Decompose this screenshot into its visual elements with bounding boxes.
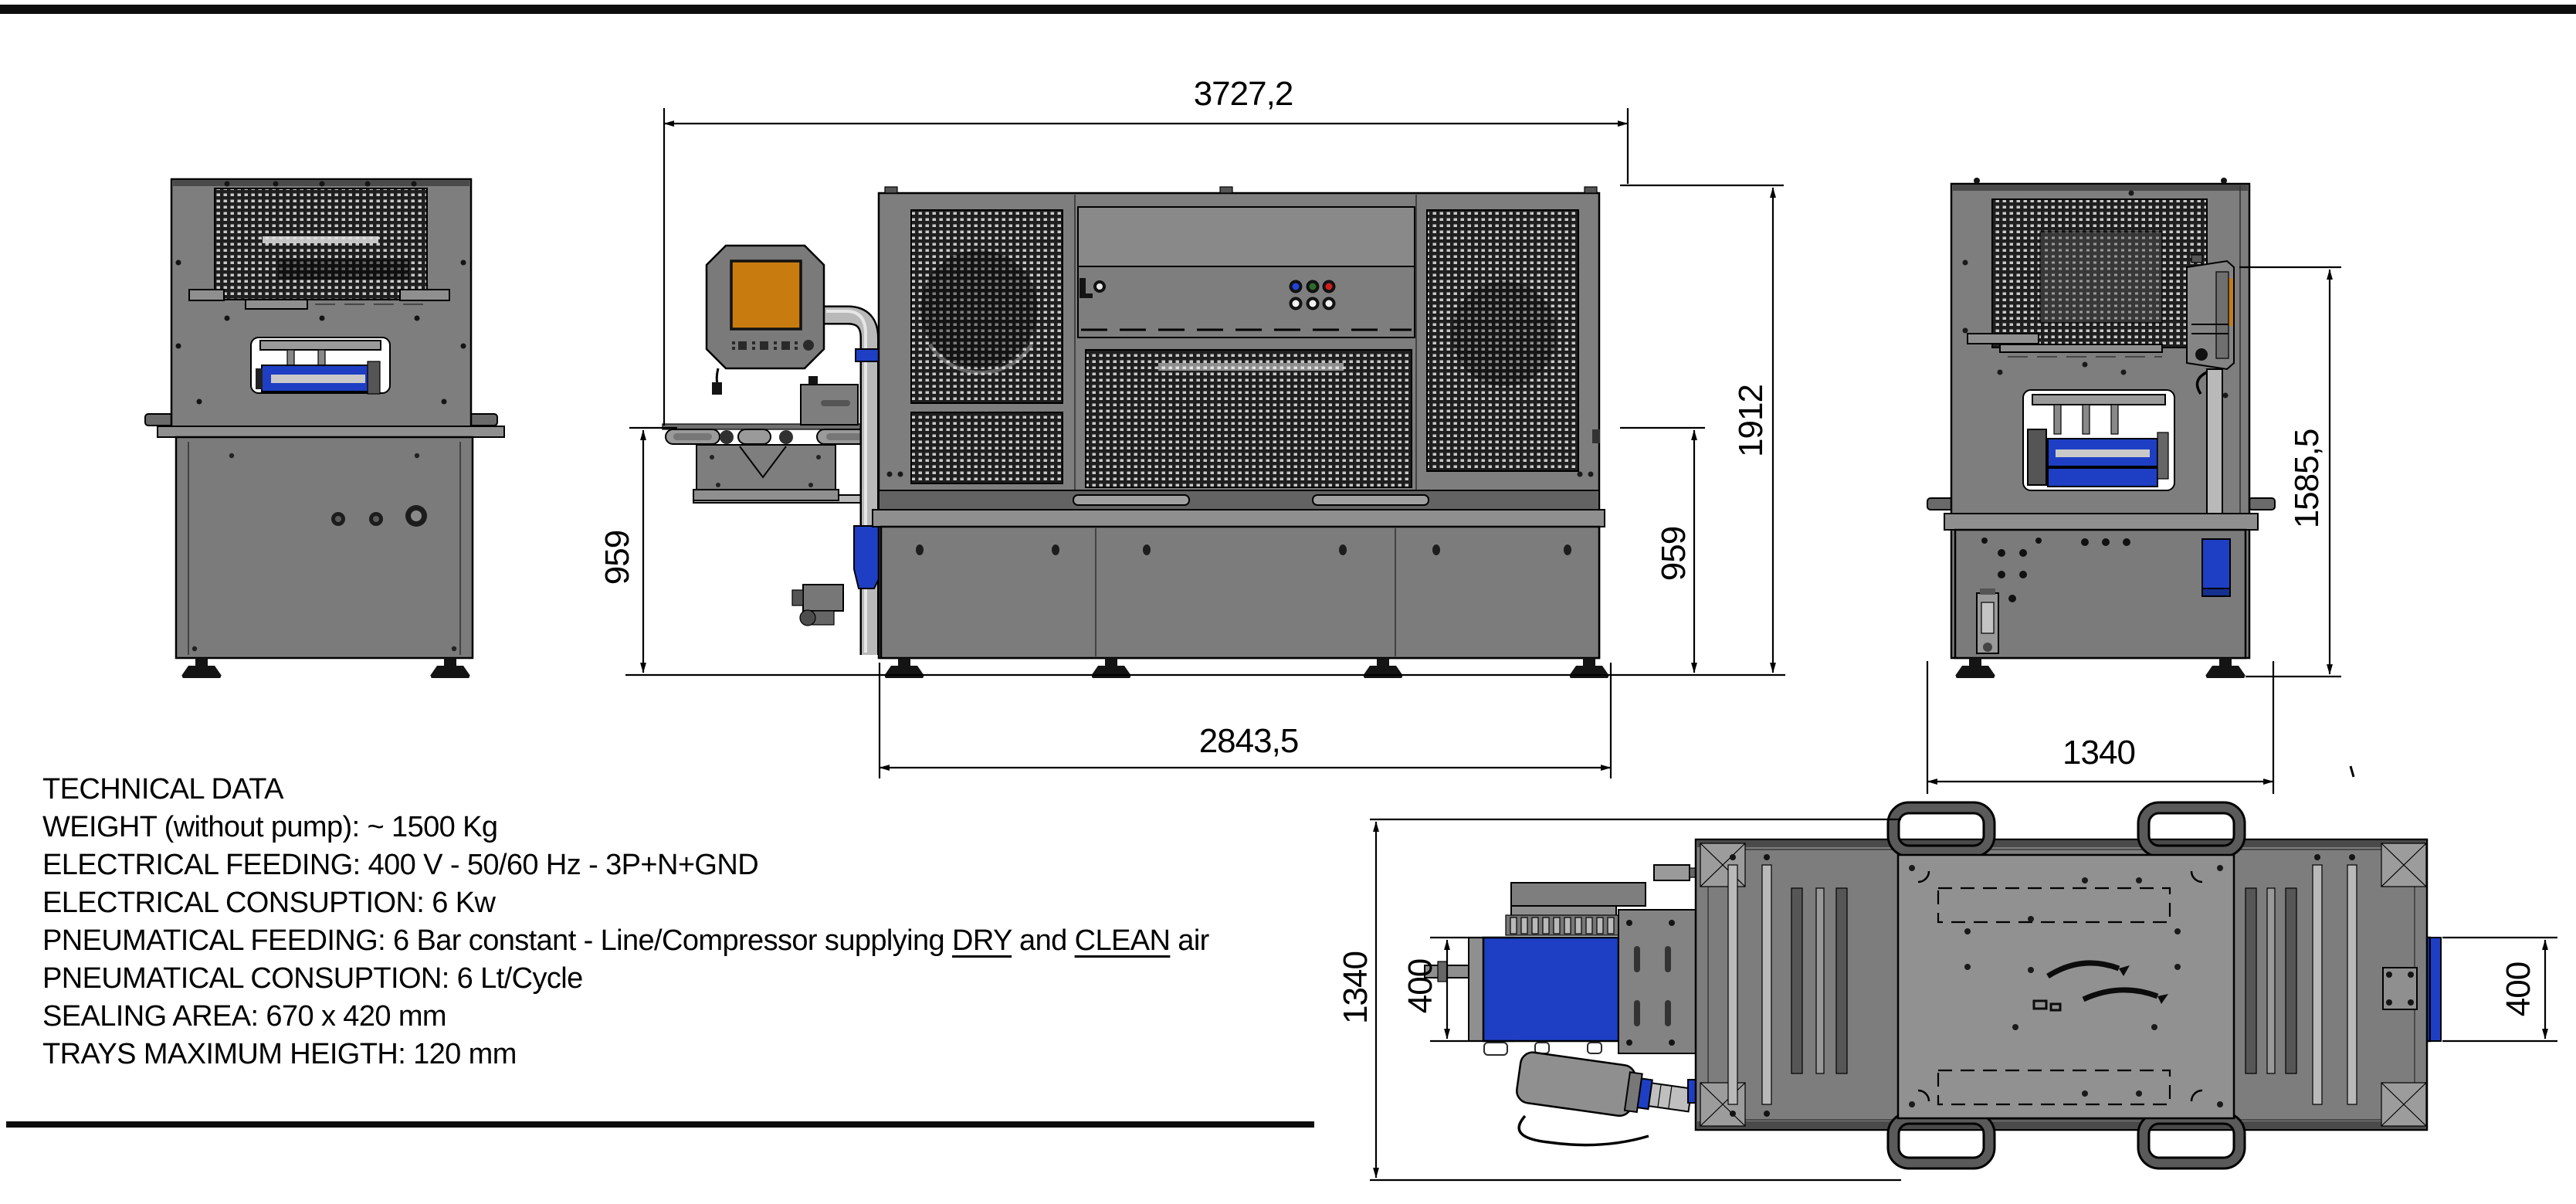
plan-infeed-belt-cap <box>1469 938 1484 1041</box>
right-view-blue-roller-lower <box>2048 468 2157 487</box>
stray-mark <box>2351 766 2354 777</box>
pneumatical-feeding-and: and <box>1012 924 1075 957</box>
roof-tab <box>1220 187 1232 193</box>
vacuum-box-slot <box>821 400 850 406</box>
left-view-handle-right <box>469 414 497 426</box>
left-view-ledge-right <box>400 290 449 300</box>
plan-frame-bottom-band <box>1697 1121 2425 1129</box>
plan-outfeed-belt-sliver <box>2430 938 2441 1041</box>
left-view-table-band <box>158 426 504 437</box>
right-view-under-ledge <box>2000 344 2162 352</box>
center-top-band <box>1078 207 1415 266</box>
pneumatical-feeding-suffix: air <box>1170 924 1208 957</box>
pilot-light-red <box>1326 283 1333 290</box>
right-view-top-bolt <box>2221 178 2227 184</box>
left-view-lower-cabinet <box>176 437 473 658</box>
plan-pipe-fitting <box>1654 865 1690 880</box>
valve-body <box>803 585 843 611</box>
dim-label-outfeed-belt-width: 400 <box>2500 962 2538 1016</box>
center-panel-highlight <box>1158 363 1344 371</box>
tech-line-sealing-area: SEALING AREA: 670 x 420 mm <box>42 998 1209 1036</box>
vacuum-pump <box>1515 1051 1693 1126</box>
right-view-blue-block-cap <box>2202 588 2230 596</box>
right-view-top-bolt <box>1974 178 1980 184</box>
left-view-panel-shadow <box>278 259 409 280</box>
plan-bracket-plate <box>1618 910 1696 1053</box>
tech-line-electrical-consuption: ELECTRICAL CONSUPTION: 6 Kw <box>42 884 1209 922</box>
dim-label-lid-height: 1585,5 <box>2288 429 2327 529</box>
pneumatical-feeding-dry: DRY <box>952 924 1012 957</box>
right-view-blue-block <box>2202 539 2230 588</box>
tech-line-pneumatical-feeding: PNEUMATICAL FEEDING: 6 Bar constant - Li… <box>42 922 1209 960</box>
roof-tab <box>885 187 897 193</box>
plan-belt-clamp <box>2383 968 2417 1009</box>
right-view-foot <box>1955 658 1995 678</box>
plan-frame-top-band <box>1697 840 2425 847</box>
hmi-knob <box>2195 348 2208 361</box>
right-view-opening-post <box>2054 405 2061 434</box>
lower-rail <box>879 490 1599 510</box>
right-view-roller-band <box>2056 449 2150 457</box>
plan-tool-plate <box>1898 855 2234 1118</box>
infeed-roller-links <box>666 429 882 444</box>
lower-cabinet <box>881 527 1599 658</box>
right-view-opening-post <box>2083 405 2090 434</box>
roof-tab <box>1585 187 1597 193</box>
air-prep-unit <box>1977 588 1998 653</box>
left-view-panel-highlight <box>263 236 378 243</box>
hmi-cable <box>717 368 718 384</box>
pull-handle <box>1073 495 1189 505</box>
dim-label-overall-width: 3727,2 <box>1194 75 1293 114</box>
pneumatical-feeding-clean: CLEAN <box>1075 924 1171 957</box>
pilot-light-blue <box>1293 283 1300 290</box>
door-latch-glyph <box>1084 293 1093 298</box>
dim-label-plan-depth: 1340 <box>1337 951 1375 1024</box>
pump-cable <box>1519 1116 1649 1145</box>
tech-line-electrical-feeding: ELECTRICAL FEEDING: 400 V - 50/60 Hz - 3… <box>42 846 1209 884</box>
left-view-handle-left <box>145 414 173 426</box>
dim-label-conveyor-height-right: 959 <box>1655 527 1693 581</box>
left-view-ledge-left <box>189 290 224 300</box>
valve-fitting <box>792 590 803 605</box>
fan-silhouette-left <box>920 250 1038 368</box>
plan-infeed-top-bar <box>1511 883 1646 906</box>
right-end-view <box>1927 178 2275 678</box>
front-view <box>663 187 1609 678</box>
dim-label-conveyor-height-left: 959 <box>598 531 637 585</box>
pilot-light-white <box>1293 300 1300 307</box>
right-view-opening-post <box>2111 405 2118 434</box>
dim-label-infeed-belt-width: 400 <box>1402 959 1440 1013</box>
pilot-light-white <box>1326 300 1333 307</box>
side-latch <box>1592 429 1600 443</box>
infeed-bottom-bar <box>693 490 839 500</box>
left-view-roller-band <box>271 375 365 383</box>
left-view-roller-gear <box>368 361 380 394</box>
pull-handle <box>1313 495 1429 505</box>
left-view-perforated-panel <box>215 188 427 300</box>
tech-line-weight: WEIGHT (without pump): ~ 1500 Kg <box>42 809 1209 846</box>
tech-line-pneumatical-consuption: PNEUMATICAL CONSUPTION: 6 Lt/Cycle <box>42 960 1209 998</box>
vacuum-box-knob <box>808 376 818 385</box>
right-view-hmi-edge <box>2187 255 2234 369</box>
valve-knob <box>800 610 815 626</box>
right-view-handle-right <box>2249 498 2275 510</box>
right-view-column-pipe <box>2207 369 2222 516</box>
right-view-top-band <box>1953 185 2248 191</box>
right-view-panel-inset <box>2040 232 2162 323</box>
left-view-opening-top-plate <box>260 341 381 350</box>
dim-label-overall-height: 1912 <box>1732 385 1771 457</box>
right-view-handle-left <box>1927 498 1954 510</box>
right-view-foot <box>2205 658 2246 678</box>
dim-label-base-width: 2843,5 <box>1199 722 1299 761</box>
pilot-light-green <box>1310 283 1317 290</box>
left-cabinet-perforated-lower <box>911 412 1063 483</box>
hmi-cable-plug <box>712 382 722 395</box>
fan-silhouette-right <box>1452 281 1557 386</box>
right-view-ledge <box>1968 334 2039 344</box>
hmi-screen <box>731 261 801 329</box>
indicator-lamp-lens <box>1096 283 1103 290</box>
left-view-ledge-center <box>246 300 307 309</box>
drawing-sheet: 3727,2 959 959 1912 2843,5 1585,5 1340 1… <box>0 0 2576 1204</box>
table-band <box>873 510 1605 527</box>
left-view-foot <box>430 658 470 678</box>
left-end-view <box>145 179 504 678</box>
left-view-roller-cap <box>256 368 263 389</box>
left-view-foot <box>181 658 222 678</box>
pneumatical-feeding-prefix: PNEUMATICAL FEEDING: 6 Bar constant - Li… <box>42 924 952 957</box>
control-band <box>1078 266 1415 337</box>
right-view-opening-plate <box>2032 395 2165 405</box>
hmi-screen-edge <box>2229 278 2233 326</box>
technical-data-title: TECHNICAL DATA <box>42 771 1209 809</box>
right-view-roller-mech <box>2028 429 2046 485</box>
right-view-table-band <box>1944 514 2258 530</box>
technical-data-block: TECHNICAL DATA WEIGHT (without pump): ~ … <box>42 771 1209 1073</box>
tech-line-trays-max-height: TRAYS MAXIMUM HEIGTH: 120 mm <box>42 1036 1209 1073</box>
plan-view <box>1425 808 2441 1163</box>
plan-infeed-belt <box>1483 938 1618 1041</box>
right-view-roller-end <box>2157 432 2168 479</box>
pilot-light-white <box>1310 300 1317 307</box>
dim-label-side-width: 1340 <box>2062 734 2135 772</box>
